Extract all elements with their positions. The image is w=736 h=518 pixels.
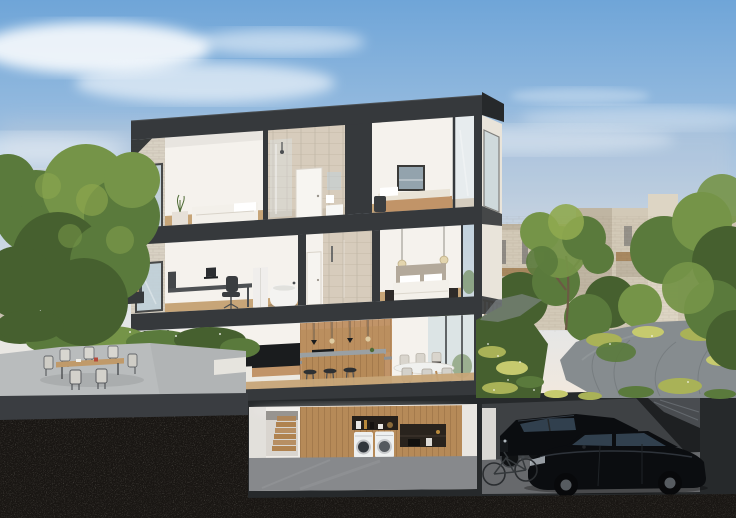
desk-niche [400,424,446,447]
basement [240,388,736,505]
table-decor-white [76,359,81,362]
towel [326,195,334,203]
laundry-room [249,403,477,491]
master-bedroom [380,225,476,303]
bathroom-door [307,252,321,305]
handlebar-icon [522,456,525,459]
architectural-render [0,0,736,518]
wall-divider [263,130,268,220]
nightstand [385,290,394,301]
staircase [266,411,298,456]
wall-art [398,166,424,190]
double-bed [393,263,449,302]
structural-wall [345,122,372,215]
scene-canvas [0,0,736,518]
shelf-niche [352,416,398,430]
bathroom-door [296,168,322,220]
armchair [374,196,386,212]
middle-floor-bathroom [306,231,372,306]
lounge-corner [214,357,246,375]
laundry-floor [249,456,477,491]
top-floor-bathroom [268,124,345,219]
table-decor-red [94,358,98,362]
shower-head-icon [280,150,284,154]
dryer [375,432,394,458]
island-plant [370,348,374,352]
window-right [462,225,476,298]
laptop [204,267,218,278]
side-window [484,130,499,212]
wall-divider [372,230,380,302]
window-right [454,115,474,208]
garage [482,394,708,497]
cabinet-white [253,267,268,308]
mirror-icon [582,445,586,449]
top-floor-guest-room [372,115,474,213]
shower [270,138,292,217]
faucet-icon [293,282,296,285]
headlight-icon [504,440,507,443]
wall-divider [298,234,306,305]
washer [354,432,373,458]
mirror [327,172,341,190]
